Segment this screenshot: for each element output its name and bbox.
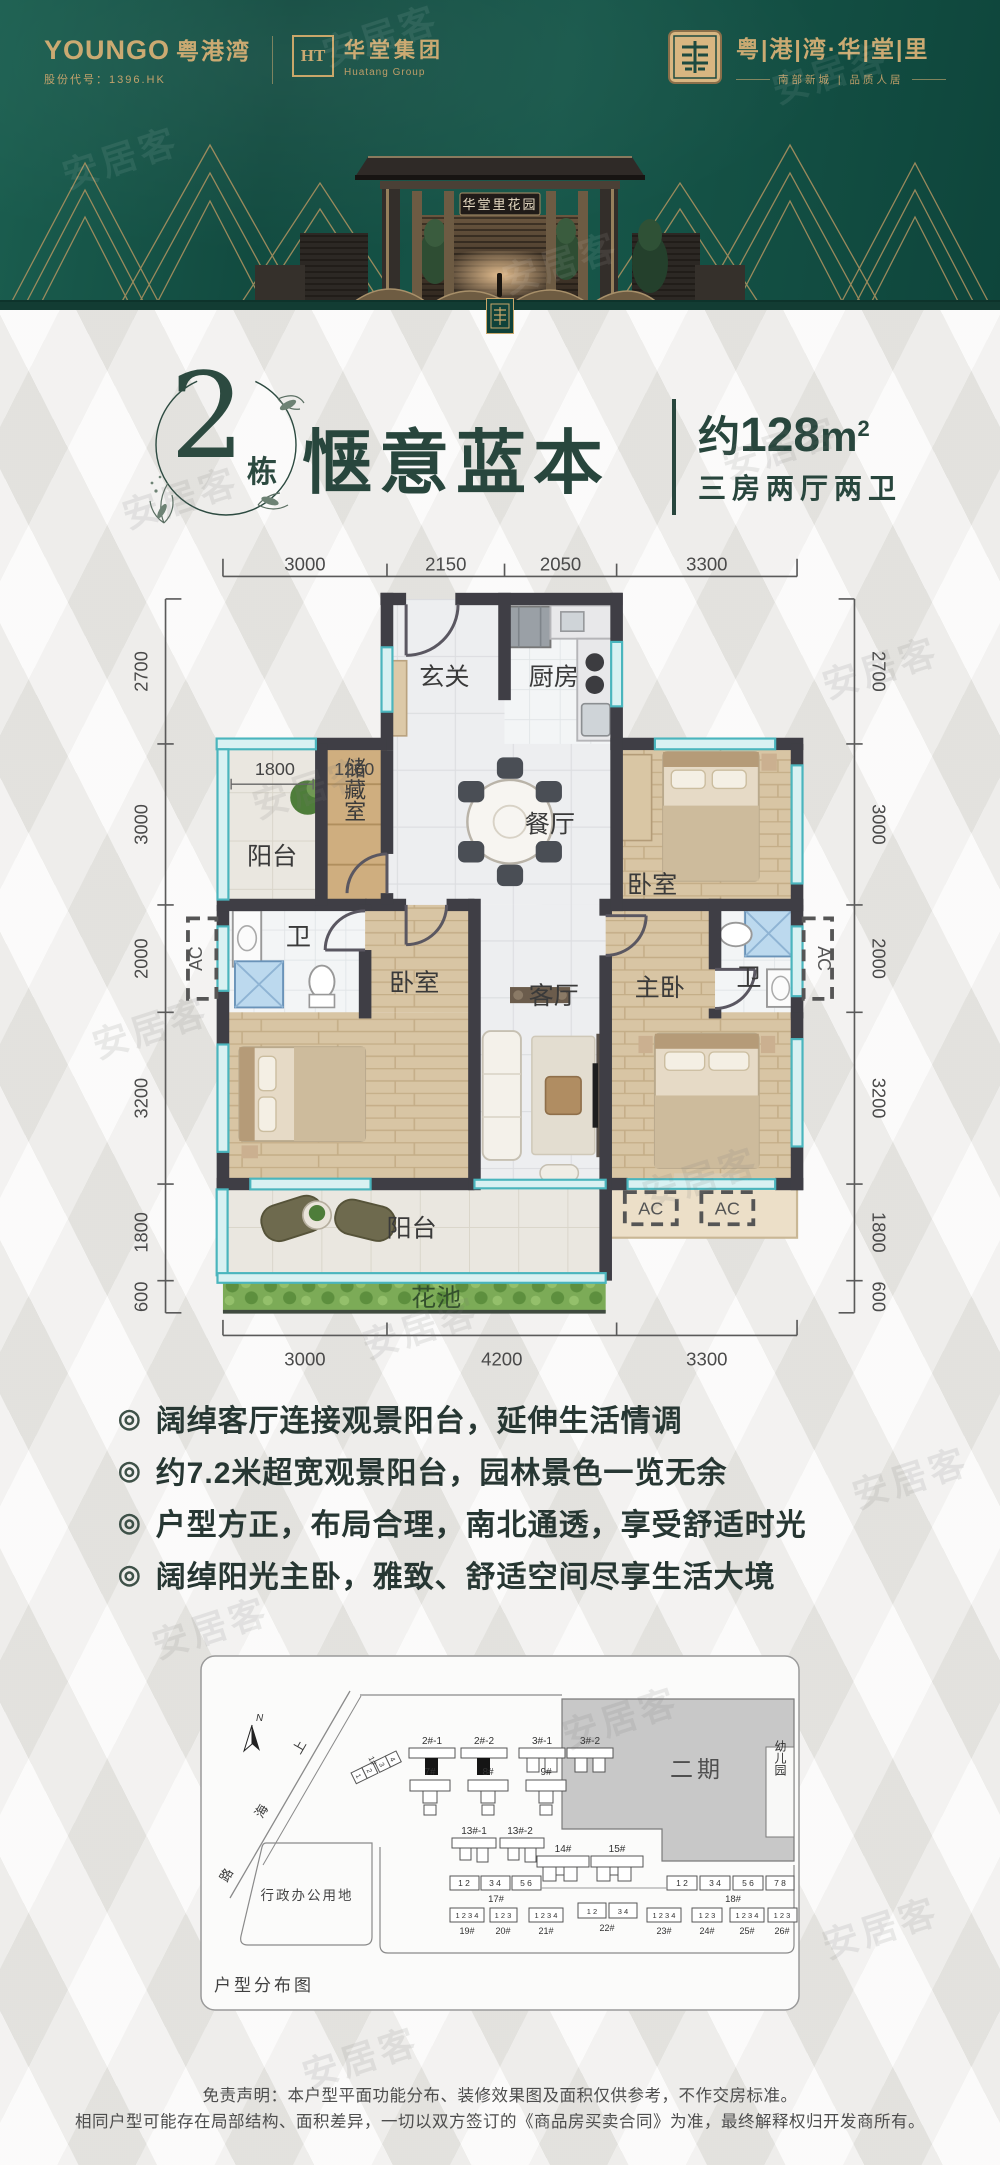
unit-group: 1 2 3 4 <box>736 1911 759 1920</box>
area-value: 128 <box>740 409 820 462</box>
unit-group: 1 2 3 4 <box>535 1911 558 1920</box>
unit-group: 5 6 <box>520 1878 532 1888</box>
project-seal-icon <box>668 30 722 84</box>
dim-top-0: 3000 <box>284 554 325 575</box>
feature-text-4: 阔绰阳光主卧，雅致、舒适空间尽享生活大境 <box>156 1552 776 1596</box>
emblem-seal-icon <box>486 298 514 334</box>
ring-bullet-icon: ◎ <box>118 1561 142 1587</box>
ring-bullet-icon: ◎ <box>118 1509 142 1535</box>
room-dining: 餐厅 <box>525 811 575 839</box>
ring-bullet-icon: ◎ <box>118 1457 142 1483</box>
tower-label: 2#-2 <box>474 1736 494 1747</box>
layout-spec: 三房两厅两卫 <box>698 467 902 507</box>
header-banner: YOUNGO 粤港湾 股份代号：1396.HK HT 华堂集团 Huatang … <box>0 0 1000 310</box>
ac-label-bottom1: AC <box>638 1199 663 1219</box>
title-block: 2 栋 惬意蓝本 约128m2 三房两厅两卫 <box>0 355 1000 535</box>
feature-text-3: 户型方正，布局合理，南北通透，享受舒适时光 <box>156 1500 807 1544</box>
room-balcony-small: 阳台 <box>247 843 297 871</box>
youngo-logo-text: YOUNGO <box>44 35 170 66</box>
site-plan-caption: 户型分布图 <box>214 1976 314 1995</box>
north-label: N <box>256 1713 264 1724</box>
tower-label: 13#-1 <box>461 1826 487 1837</box>
room-bath2: 卫 <box>736 964 761 992</box>
tower-label: 8# <box>482 1767 494 1778</box>
brand-huatang: HT 华堂集团 Huatang Group <box>292 34 444 78</box>
tower-label: 15# <box>609 1844 626 1855</box>
unit-group: 1 2 3 <box>495 1911 512 1920</box>
admin-land-label: 行政办公用地 <box>261 1888 354 1903</box>
page-title: 惬意蓝本 <box>302 407 610 508</box>
dim-bottom-0: 3000 <box>284 1349 325 1370</box>
strip-label: 18# <box>725 1894 742 1905</box>
unit-group: 7 8 <box>774 1878 786 1888</box>
watermark: 安居客 <box>815 1883 945 1970</box>
unit-group: 1 2 3 4 <box>653 1911 676 1920</box>
unit-group: 5 6 <box>742 1878 754 1888</box>
dim-right-0: 2700 <box>868 651 889 692</box>
ac-label-bottom2: AC <box>715 1199 740 1219</box>
label-1200: 1200 <box>334 759 374 779</box>
feature-list: ◎阔绰客厅连接观景阳台，延伸生活情调 ◎约7.2米超宽观景阳台，园林景色一览无余… <box>118 1392 918 1600</box>
area-prefix: 约 <box>698 413 740 460</box>
dim-left-1: 3000 <box>130 804 151 845</box>
feature-text-2: 约7.2米超宽观景阳台，园林景色一览无余 <box>156 1448 728 1492</box>
gate-sign-text: 华堂里花园 <box>462 197 537 212</box>
feature-item: ◎阔绰阳光主卧，雅致、舒适空间尽享生活大境 <box>118 1548 918 1600</box>
dim-left-3: 3200 <box>130 1078 151 1119</box>
youngo-cn-text: 粤港湾 <box>176 32 251 66</box>
tower-label: 7# <box>424 1767 436 1778</box>
room-bedroom1: 卧室 <box>627 871 677 899</box>
disclaimer-line-1: 免责声明：本户型平面功能分布、装修效果图及面积仅供参考，不作交房标准。 <box>0 2082 1000 2106</box>
strip-label: 23# <box>656 1926 671 1936</box>
brand-youngo: YOUNGO 粤港湾 股份代号：1396.HK <box>44 32 251 87</box>
brand-project: 粤|港|湾·华|堂|里 南部新城 | 品质人居 <box>668 30 946 87</box>
unit-group: 1 2 <box>587 1907 597 1916</box>
strip-label: 19# <box>459 1926 474 1936</box>
brand-row: YOUNGO 粤港湾 股份代号：1396.HK HT 华堂集团 Huatang … <box>0 24 1000 104</box>
room-flower-bed: 花池 <box>411 1284 461 1312</box>
tower-label: 14# <box>555 1844 572 1855</box>
dim-right-1: 3000 <box>868 804 889 845</box>
unit-group: 3 4 <box>489 1878 501 1888</box>
tower-label: 3#-1 <box>532 1736 552 1747</box>
stock-code: 股份代号：1396.HK <box>44 71 251 87</box>
unit-group: 1 2 3 4 <box>456 1911 479 1920</box>
label-1800: 1800 <box>255 759 295 779</box>
kindergarten-label: 幼儿园 <box>773 1740 787 1777</box>
dim-left-2: 2000 <box>130 938 151 979</box>
site-plan: N 上 海 路 二期 幼儿园 4 3 2 1 <box>200 1655 800 2015</box>
dim-top-3: 3300 <box>686 554 727 575</box>
block-suffix: 栋 <box>247 447 277 491</box>
area-unit: m <box>820 413 857 460</box>
room-kitchen: 厨房 <box>529 663 579 691</box>
unit-group: 1 2 3 <box>699 1911 716 1920</box>
dim-right-5: 600 <box>868 1282 889 1312</box>
disclaimer-line-2: 相同户型可能存在局部结构、面积差异，一切以双方签订的《商品房买卖合同》为准，最终… <box>0 2108 1000 2132</box>
phase2-label: 二期 <box>670 1756 724 1782</box>
dim-left-4: 1800 <box>130 1212 151 1253</box>
dim-left-0: 2700 <box>130 651 151 692</box>
strip-label: 24# <box>699 1926 714 1936</box>
strip-label: 17# <box>488 1894 505 1905</box>
room-balcony-big: 阳台 <box>386 1215 436 1243</box>
unit-group: 1 2 <box>458 1878 470 1888</box>
brand-divider <box>272 36 273 84</box>
room-bedroom2: 卧室 <box>389 969 439 997</box>
huatang-name-en: Huatang Group <box>344 67 444 78</box>
feature-item: ◎约7.2米超宽观景阳台，园林景色一览无余 <box>118 1444 918 1496</box>
floor-plan: AC AC AC AC 玄关 厨房 餐厅 储藏室 阳台 卧室 卫 卧室 客厅 主… <box>130 548 890 1388</box>
dim-top-1: 2150 <box>425 554 466 575</box>
unit-group: 1 2 3 <box>774 1911 791 1920</box>
feature-item: ◎阔绰客厅连接观景阳台，延伸生活情调 <box>118 1392 918 1444</box>
poster-page: YOUNGO 粤港湾 股份代号：1396.HK HT 华堂集团 Huatang … <box>0 0 1000 2165</box>
block-number: 2 <box>170 357 245 475</box>
tower-label: 3#-2 <box>580 1736 600 1747</box>
tower-label: 9# <box>540 1767 552 1778</box>
huatang-monogram-icon: HT <box>292 35 334 77</box>
title-divider <box>672 399 676 515</box>
ac-label-left: AC <box>186 946 206 971</box>
huatang-name: 华堂集团 <box>344 34 444 64</box>
dim-right-4: 1800 <box>868 1212 889 1253</box>
gate-sign-plaque: 华堂里花园 <box>460 193 540 215</box>
gate-structure <box>355 157 668 305</box>
strip-label: 20# <box>495 1926 510 1936</box>
room-bath1: 卫 <box>286 923 311 951</box>
strip-label: 21# <box>538 1926 553 1936</box>
dim-bottom-1: 4200 <box>481 1349 522 1370</box>
ac-label-right: AC <box>814 946 834 971</box>
dim-right-3: 3200 <box>868 1078 889 1119</box>
strip-label: 25# <box>739 1926 754 1936</box>
feature-text-1: 阔绰客厅连接观景阳台，延伸生活情调 <box>156 1396 683 1440</box>
towers-row2: 7# 8# 9# <box>410 1767 566 1815</box>
gate-render: 华堂里花园 <box>0 105 1000 310</box>
room-entry: 玄关 <box>419 663 469 691</box>
area-text: 约128m2 <box>698 403 870 464</box>
unit-group: 3 4 <box>618 1907 628 1916</box>
area-sup: 2 <box>857 416 869 441</box>
unit-group: 1 2 <box>676 1878 688 1888</box>
strip-label: 22# <box>599 1923 614 1933</box>
tower-label: 13#-2 <box>507 1826 533 1837</box>
tower-label: 2#-1 <box>422 1736 442 1747</box>
dim-left-5: 600 <box>130 1282 151 1312</box>
project-subtitle: 南部新城 | 品质人居 <box>736 72 946 87</box>
room-master: 主卧 <box>635 974 685 1002</box>
strip-label: 26# <box>774 1926 789 1936</box>
feature-item: ◎户型方正，布局合理，南北通透，享受舒适时光 <box>118 1496 918 1548</box>
dim-right-2: 2000 <box>868 938 889 979</box>
dim-bottom-2: 3300 <box>686 1349 727 1370</box>
room-living: 客厅 <box>529 982 579 1010</box>
ring-bullet-icon: ◎ <box>118 1405 142 1431</box>
dim-top-2: 2050 <box>540 554 581 575</box>
unit-group: 3 4 <box>709 1878 721 1888</box>
project-name: 粤|港|湾·华|堂|里 <box>736 30 946 64</box>
